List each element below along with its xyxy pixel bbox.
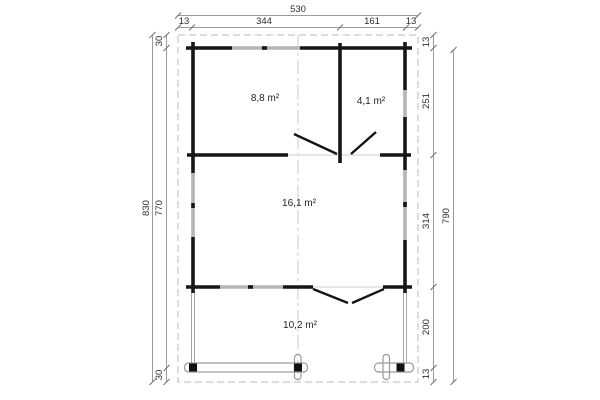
- terrace-post-right: [397, 364, 405, 372]
- dim-label-right-seg-4: 13: [421, 369, 432, 380]
- dim-label-right-seg-2: 314: [421, 213, 432, 229]
- dim-label-right-seg-3: 200: [421, 319, 432, 335]
- interior-door-leaf-right: [351, 132, 376, 154]
- dim-label-top-seg-0: 13: [179, 16, 190, 27]
- walls: [186, 42, 412, 293]
- dim-label-right-overall: 790: [441, 208, 452, 224]
- dim-label-left-overall: 830: [141, 200, 152, 216]
- terrace-post-left: [189, 364, 197, 372]
- room-area-label-3: 16,1 m²: [282, 198, 317, 209]
- floor-plan-canvas: 530 13 344 161 13 830 30 770 30 13 251 3…: [0, 0, 600, 400]
- room-area-label-4: 10,2 m²: [283, 320, 318, 331]
- floor-plan-drawing: 530 13 344 161 13 830 30 770 30 13 251 3…: [0, 0, 600, 400]
- room-area-label-1: 8,8 m²: [251, 93, 280, 104]
- terrace-door-leaf-left: [313, 289, 348, 303]
- terrace-post-middle: [294, 364, 302, 372]
- terrace: [185, 293, 414, 380]
- dim-label-right-seg-1: 251: [421, 93, 432, 109]
- terrace-door-leaf-right: [352, 289, 384, 303]
- dim-label-top-seg-1: 344: [256, 16, 272, 27]
- room-area-label-2: 4,1 m²: [357, 96, 386, 107]
- dim-label-top-total: 530: [290, 4, 306, 15]
- dim-label-top-seg-2: 161: [364, 16, 380, 27]
- dim-label-left-seg-0: 30: [154, 36, 165, 47]
- dim-label-left-seg-2: 30: [154, 370, 165, 381]
- interior-door-leaf-left: [294, 134, 337, 154]
- dim-label-left-seg-1: 770: [154, 200, 165, 216]
- terrace-railing-right: [375, 363, 414, 372]
- room-labels: 8,8 m² 4,1 m² 16,1 m² 10,2 m²: [251, 93, 386, 331]
- dim-label-top-seg-3: 13: [406, 16, 417, 27]
- dim-label-right-seg-0: 13: [421, 37, 432, 48]
- terrace-railing-left: [185, 363, 308, 372]
